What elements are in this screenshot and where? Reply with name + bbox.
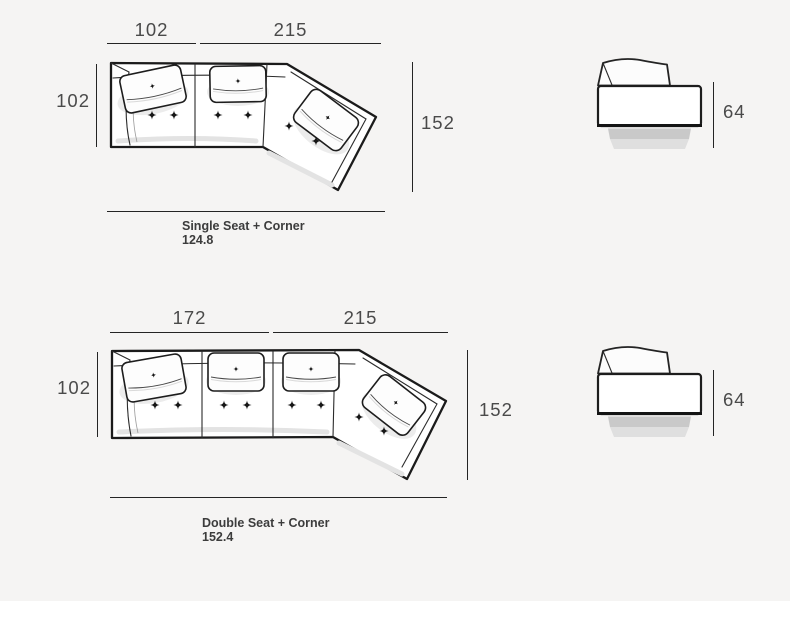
corner-width-dim-label: 215	[200, 19, 381, 41]
seat-height-dim-line	[713, 82, 714, 148]
sofa-dimension-sheet: 102 215 102	[0, 0, 790, 641]
caption-rule	[110, 497, 447, 498]
seat-height-dim-label: 64	[723, 389, 757, 411]
side-back-pillow	[598, 347, 670, 374]
total-depth-dim-line	[467, 350, 468, 480]
caption-title: Single Seat + Corner	[182, 220, 305, 234]
depth-dim-label: 102	[54, 90, 90, 112]
corner-width-dim-label: 215	[273, 307, 448, 329]
side-seat-body	[598, 86, 701, 126]
seat-height-dim-line	[713, 370, 714, 436]
total-depth-dim-line	[412, 62, 413, 192]
caption-block: Double Seat + Corner 152.4	[202, 517, 329, 544]
sofa-top-view	[105, 58, 395, 200]
total-depth-dim-label: 152	[421, 112, 461, 134]
seat-width-dim-line	[107, 43, 196, 44]
side-seat-body	[598, 374, 701, 414]
corner-width-dim-line	[273, 332, 448, 333]
caption-value: 152.4	[202, 531, 329, 545]
corner-width-dim-line	[200, 43, 381, 44]
seat-width-dim-line	[110, 332, 269, 333]
caption-block: Single Seat + Corner 124.8	[182, 220, 305, 247]
seat-height-dim-label: 64	[723, 101, 757, 123]
caption-value: 124.8	[182, 234, 305, 248]
caption-title: Double Seat + Corner	[202, 517, 329, 531]
depth-dim-line	[97, 352, 98, 437]
side-back-pillow	[598, 59, 670, 86]
sofa-top-view	[105, 345, 460, 490]
seat-width-dim-label: 172	[110, 307, 269, 329]
caption-rule	[107, 211, 385, 212]
side-base	[608, 417, 691, 438]
back-cushion-2	[208, 353, 264, 391]
total-depth-dim-label: 152	[479, 399, 519, 421]
back-cushion-2	[210, 66, 267, 103]
sofa-side-view	[590, 55, 712, 155]
seat-width-dim-label: 102	[107, 19, 196, 41]
side-base	[608, 129, 691, 150]
back-cushion-3	[283, 353, 339, 391]
depth-dim-line	[96, 64, 97, 147]
depth-dim-label: 102	[55, 377, 91, 399]
diagram-canvas: 102 215 102	[0, 0, 790, 601]
sofa-side-view	[590, 343, 712, 443]
